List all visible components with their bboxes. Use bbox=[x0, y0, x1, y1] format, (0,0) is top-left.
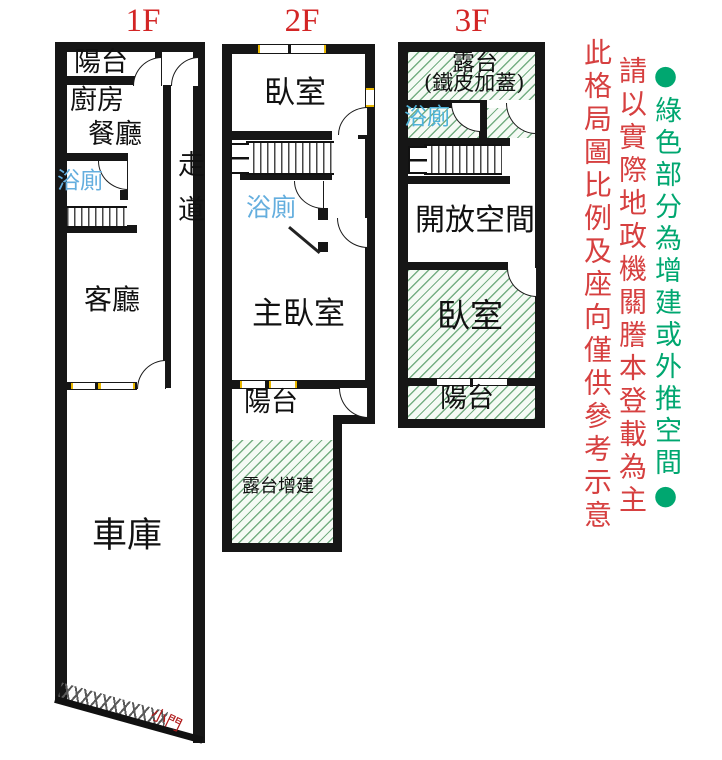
room-label-bath: 浴廁 bbox=[246, 195, 296, 221]
door-arc bbox=[338, 107, 368, 135]
wall bbox=[398, 42, 408, 428]
wall bbox=[67, 153, 128, 161]
wall bbox=[333, 415, 375, 424]
note-disclaimer: 此格局圖比例及座向僅供參考示意 bbox=[576, 38, 616, 533]
window-tick bbox=[95, 382, 98, 390]
wall bbox=[318, 208, 328, 220]
stairs bbox=[67, 206, 127, 228]
room-label-bath: 浴廁 bbox=[57, 170, 103, 194]
door-arc bbox=[137, 360, 166, 389]
door-arc bbox=[294, 181, 324, 209]
wall bbox=[222, 44, 232, 552]
room-label-bath: 浴廁 bbox=[404, 106, 450, 130]
note-green-addition: ●綠色部分為增建或外推空間● bbox=[646, 60, 685, 516]
wall bbox=[193, 42, 205, 743]
room-label-bedroom: 臥室 bbox=[437, 299, 503, 333]
room-label-master-bedroom: 主臥室 bbox=[252, 298, 345, 330]
stairs-landing bbox=[230, 143, 249, 174]
window-tick bbox=[288, 44, 291, 54]
stairs bbox=[246, 141, 334, 175]
door-arc bbox=[339, 388, 368, 418]
door-arc bbox=[171, 57, 199, 86]
door-arc bbox=[337, 218, 368, 248]
room-label-open-space: 開放空間 bbox=[415, 205, 535, 236]
wall bbox=[232, 131, 332, 140]
window bbox=[258, 45, 326, 53]
wall bbox=[120, 190, 128, 200]
room-label-corridor: 走道 bbox=[169, 150, 208, 240]
window bbox=[366, 88, 374, 107]
window bbox=[99, 383, 135, 389]
wall bbox=[398, 419, 545, 428]
wall bbox=[55, 42, 67, 702]
floor-title-2f: 2F bbox=[272, 3, 332, 40]
note-registry: 請以實際地政機關謄本登載為主 bbox=[611, 56, 651, 518]
room-label-balcony: 陽台 bbox=[244, 389, 298, 417]
room-label-living: 客廳 bbox=[84, 285, 140, 314]
wall bbox=[408, 176, 510, 184]
room-label-bedroom: 臥室 bbox=[264, 77, 326, 109]
room-label-garage: 車庫 bbox=[92, 518, 162, 554]
floor-title-1f: 1F bbox=[113, 3, 173, 40]
floor-title-3f: 3F bbox=[442, 3, 502, 40]
stairs-landing bbox=[408, 146, 427, 174]
wall bbox=[535, 42, 545, 428]
wall bbox=[408, 262, 508, 270]
room-label-kitchen: 廚房 bbox=[70, 87, 124, 115]
wall bbox=[333, 424, 342, 552]
room-label-terrace-note: (鐵皮加蓋) bbox=[424, 73, 524, 95]
room-label-dining: 餐廳 bbox=[88, 121, 142, 149]
room-label-balcony: 陽台 bbox=[440, 385, 494, 413]
door-arc bbox=[133, 57, 162, 86]
floor-plan-page: 1F 2F 3F 陽台 廚房 餐廳 浴廁 走道 客 bbox=[0, 0, 722, 760]
room-label-balcony: 陽台 bbox=[74, 49, 128, 77]
room-label-terrace-addition: 露台增建 bbox=[242, 478, 314, 497]
door-leaf bbox=[288, 226, 320, 254]
stairs bbox=[424, 144, 502, 175]
wall bbox=[222, 543, 342, 552]
